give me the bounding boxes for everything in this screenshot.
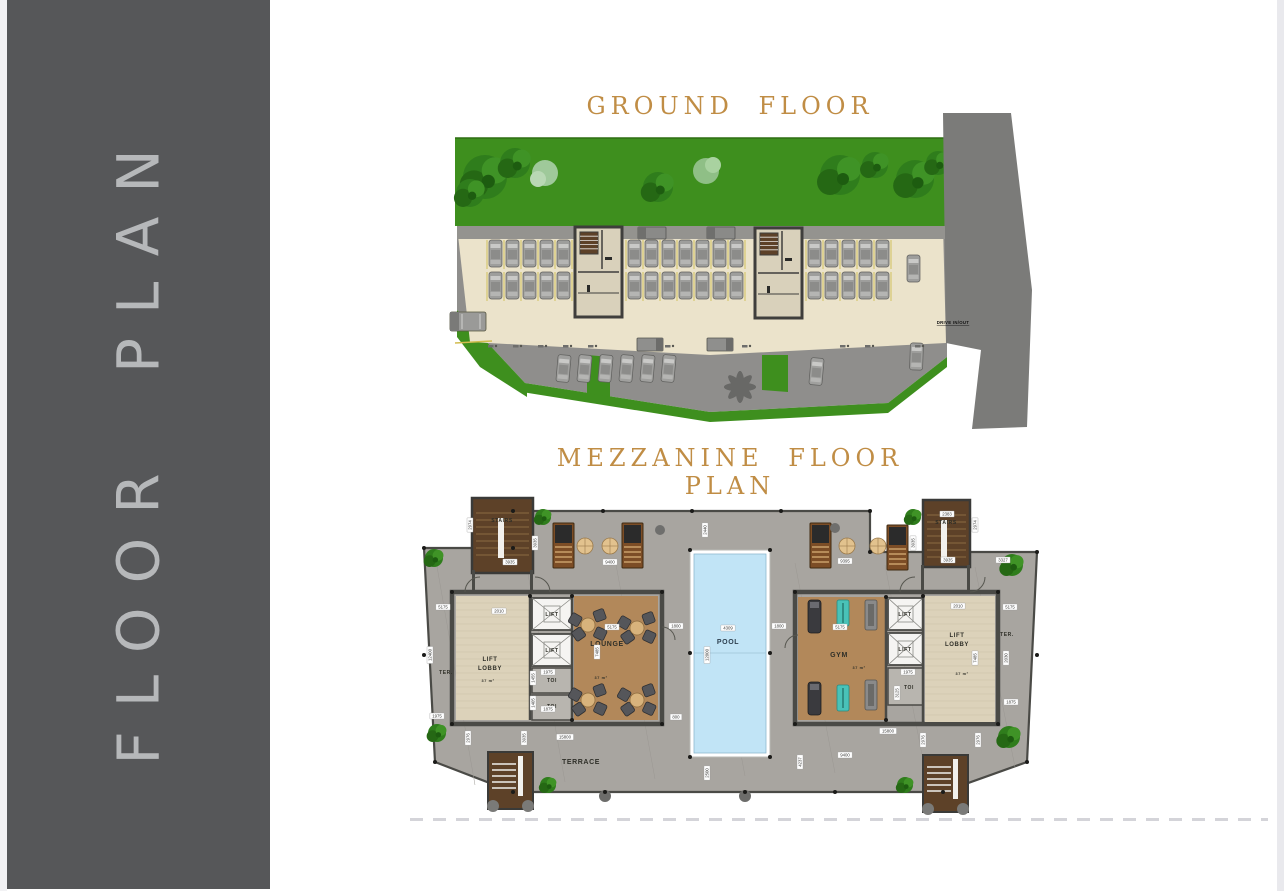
column-dot xyxy=(868,509,872,513)
room-label: TOI xyxy=(547,678,557,684)
dimension-text: 2976 xyxy=(976,735,981,745)
column-dot xyxy=(603,790,607,794)
shape xyxy=(664,250,673,259)
shape xyxy=(643,365,653,375)
shape xyxy=(559,292,569,296)
dimension-text: 2974 xyxy=(468,520,473,530)
dimension-label: 3935 xyxy=(503,559,517,565)
dimension-label: 2030 xyxy=(1003,651,1009,665)
dimension-label: 1975 xyxy=(901,669,915,675)
car-icon xyxy=(859,240,872,267)
column-dot xyxy=(768,755,772,759)
shape xyxy=(508,244,518,248)
shape xyxy=(844,250,853,259)
truck-icon xyxy=(450,312,486,331)
car-icon xyxy=(540,272,553,299)
dot xyxy=(912,177,923,188)
dot xyxy=(545,345,547,347)
column-dot xyxy=(768,548,772,552)
dimension-text: 2976 xyxy=(466,733,471,743)
column-dot xyxy=(941,790,945,794)
dimension-text: 2440 xyxy=(703,525,708,535)
shape xyxy=(868,684,874,706)
shape xyxy=(941,520,947,560)
dimension-label: 2010 xyxy=(492,608,506,614)
column-dot xyxy=(868,550,872,554)
shape xyxy=(508,282,517,291)
room-label: LIFT xyxy=(545,612,559,618)
column-dot xyxy=(422,653,426,657)
shape xyxy=(664,276,674,280)
dot xyxy=(922,345,924,347)
column-dot xyxy=(768,651,772,655)
dimension-text: 1405 xyxy=(531,698,536,708)
shape xyxy=(542,282,551,291)
shape xyxy=(698,260,708,264)
dot xyxy=(705,157,721,173)
shape xyxy=(525,244,535,248)
shape xyxy=(491,282,500,291)
shape xyxy=(767,286,770,293)
sun-lounger-icon xyxy=(622,523,643,568)
car-icon xyxy=(619,354,634,382)
shape xyxy=(681,276,691,280)
top-aisle xyxy=(457,226,945,239)
dimension-text: 2976 xyxy=(921,735,926,745)
car-icon xyxy=(679,240,692,267)
shape xyxy=(878,244,888,248)
shape xyxy=(491,250,500,259)
car-icon xyxy=(808,240,821,267)
shape xyxy=(732,244,742,248)
car-icon xyxy=(696,240,709,267)
dot xyxy=(912,516,917,521)
dimension-text: 9400 xyxy=(605,560,615,565)
shape xyxy=(715,282,724,291)
column-dot xyxy=(921,594,925,598)
wheel-stop xyxy=(513,345,519,348)
shape xyxy=(647,276,657,280)
dimension-text: 3935 xyxy=(911,538,916,548)
ground-floor-plan: DRIVE IN/OUT xyxy=(410,105,1040,450)
dimension-text: 5175 xyxy=(438,605,448,610)
dimension-text: 3125 xyxy=(895,688,900,698)
shape xyxy=(681,260,691,264)
dot xyxy=(837,173,849,185)
shape xyxy=(707,227,715,239)
dimension-text: 4309 xyxy=(723,626,733,631)
car-icon xyxy=(842,272,855,299)
shape xyxy=(542,276,552,280)
sidebar-vertical-title: FLOOR PLAN xyxy=(105,125,173,764)
car-icon xyxy=(808,272,821,299)
dimension-text: 3935 xyxy=(533,538,538,548)
dot xyxy=(904,784,909,789)
wheel-stop xyxy=(588,345,594,348)
column-dot xyxy=(660,722,664,726)
shape xyxy=(559,244,569,248)
car-icon xyxy=(907,255,920,282)
shape xyxy=(525,282,534,291)
shape xyxy=(525,250,534,259)
dimension-text: 1800 xyxy=(671,624,681,629)
dimension-text: 1800 xyxy=(774,624,784,629)
room-label: POOL xyxy=(717,639,739,646)
shape xyxy=(785,258,792,261)
shape xyxy=(508,260,518,264)
stair-foot xyxy=(487,800,499,812)
car-icon xyxy=(557,272,570,299)
dimension-label: 15800 xyxy=(880,728,897,734)
dimension-text: 7485 xyxy=(973,653,978,663)
column-dot xyxy=(688,755,692,759)
car-icon xyxy=(628,240,641,267)
dimension-label: 5175 xyxy=(833,624,847,630)
dimension-label: 1405 xyxy=(530,696,536,710)
dimension-text: 12400 xyxy=(428,648,433,661)
shape xyxy=(630,260,640,264)
shape xyxy=(878,276,888,280)
column-dot xyxy=(433,760,437,764)
shape xyxy=(878,250,887,259)
dimension-text: 9395 xyxy=(840,559,850,564)
column-dot xyxy=(884,718,888,722)
shape xyxy=(953,759,958,799)
dimension-text: 1975 xyxy=(432,714,442,719)
shape xyxy=(878,282,887,291)
shape xyxy=(559,250,568,259)
shape xyxy=(760,233,778,255)
car-icon xyxy=(696,272,709,299)
column-dot xyxy=(511,790,515,794)
dot xyxy=(570,345,572,347)
dimension-label: 7485 xyxy=(594,645,600,659)
shape xyxy=(827,244,837,248)
dot xyxy=(547,784,552,789)
shape xyxy=(698,244,708,248)
shape xyxy=(861,250,870,259)
dimension-text: 2974 xyxy=(973,520,978,530)
column-dot xyxy=(528,594,532,598)
shape xyxy=(525,260,535,264)
car-icon xyxy=(645,240,658,267)
shape xyxy=(664,292,674,296)
shape xyxy=(827,250,836,259)
room-label: TER. xyxy=(439,670,453,676)
dot xyxy=(656,186,665,195)
column-dot xyxy=(688,548,692,552)
dimension-label: 1875 xyxy=(541,706,555,712)
dimension-label: 3125 xyxy=(894,686,900,700)
column-dot xyxy=(996,590,1000,594)
dimension-label: 3935 xyxy=(941,557,955,563)
car-icon xyxy=(628,272,641,299)
shape xyxy=(698,250,707,259)
dimension-text: 15800 xyxy=(559,735,572,740)
shape xyxy=(726,338,733,351)
car-icon xyxy=(640,354,655,382)
dot xyxy=(436,732,441,737)
column-dot xyxy=(450,722,454,726)
dimension-text: 7485 xyxy=(595,647,600,657)
column-dot xyxy=(833,790,837,794)
shape xyxy=(715,276,725,280)
car-icon xyxy=(506,272,519,299)
room-label: GYM xyxy=(830,652,848,659)
car-icon xyxy=(713,240,726,267)
dimension-label: 5175 xyxy=(436,604,450,610)
room-label: 37 m² xyxy=(956,672,969,676)
dimension-label: 2500 xyxy=(704,766,710,780)
shape xyxy=(715,292,725,296)
sun-lounger-icon xyxy=(810,523,831,568)
shape xyxy=(861,282,870,291)
shape xyxy=(810,276,820,280)
shape xyxy=(498,518,504,558)
shape xyxy=(630,276,640,280)
wheel-stop xyxy=(538,345,544,348)
room-label: STAIRS xyxy=(935,520,957,526)
dot xyxy=(1010,564,1017,571)
dimension-text: 1455 xyxy=(531,673,536,683)
dimension-label: 3327 xyxy=(996,557,1010,563)
shape xyxy=(810,684,819,690)
column-dot xyxy=(690,509,694,513)
car-icon xyxy=(842,240,855,267)
dimension-text: 12000 xyxy=(705,648,710,661)
dimension-text: 9400 xyxy=(840,753,850,758)
shape xyxy=(518,756,523,796)
car-icon xyxy=(489,272,502,299)
tree-icon xyxy=(904,509,922,525)
shape xyxy=(491,244,501,248)
shape xyxy=(605,257,612,260)
dimension-label: 1975 xyxy=(541,669,555,675)
round-column xyxy=(830,523,840,533)
car-icon xyxy=(598,354,613,382)
stair-foot xyxy=(922,803,934,815)
dimension-label: 7485 xyxy=(972,651,978,665)
shape xyxy=(508,276,518,280)
dimension-label: 9400 xyxy=(603,559,617,565)
drive-inout-label: DRIVE IN/OUT xyxy=(937,320,970,325)
shape xyxy=(715,260,725,264)
shape xyxy=(542,250,551,259)
column-dot xyxy=(688,651,692,655)
shape xyxy=(681,282,690,291)
column-dot xyxy=(422,546,426,550)
sun-lounger-icon xyxy=(887,525,908,570)
dimension-text: 2500 xyxy=(705,768,710,778)
column-dot xyxy=(570,594,574,598)
shape xyxy=(647,292,657,296)
shape xyxy=(542,292,552,296)
dot xyxy=(672,345,674,347)
dimension-label: 3935 xyxy=(910,536,916,550)
dimension-text: 800 xyxy=(672,715,680,720)
dimension-label: 1455 xyxy=(530,671,536,685)
shape xyxy=(732,260,742,264)
room-label: TERRACE xyxy=(562,759,600,766)
grass-island xyxy=(762,355,788,392)
column-dot xyxy=(793,590,797,594)
shape xyxy=(878,260,888,264)
wheel-stop xyxy=(840,345,846,348)
shape xyxy=(844,260,854,264)
car-icon xyxy=(540,240,553,267)
dimension-label: 15800 xyxy=(557,734,574,740)
shape xyxy=(715,244,725,248)
column-dot xyxy=(743,790,747,794)
shape xyxy=(827,282,836,291)
shape xyxy=(664,282,673,291)
stair-foot xyxy=(957,803,969,815)
shape xyxy=(559,282,568,291)
shape xyxy=(525,292,535,296)
dot xyxy=(513,162,522,171)
shape xyxy=(909,275,919,279)
shape xyxy=(810,602,819,608)
dimension-label: 2383 xyxy=(940,511,954,517)
shape xyxy=(921,565,924,594)
column-dot xyxy=(779,509,783,513)
dot xyxy=(872,345,874,347)
wheel-stop xyxy=(915,345,921,348)
room-label: 37 m² xyxy=(482,679,495,683)
dimension-label: 3935 xyxy=(532,536,538,550)
shape xyxy=(664,244,674,248)
dimension-text: 2010 xyxy=(494,609,504,614)
room-label: LIFT xyxy=(949,633,964,639)
dot xyxy=(873,164,881,172)
shape xyxy=(656,338,663,351)
dimension-label: 4309 xyxy=(721,625,735,631)
shape xyxy=(909,259,919,263)
dimension-text: 5175 xyxy=(835,625,845,630)
dimension-label: 3935 xyxy=(521,731,527,745)
dot xyxy=(542,516,547,521)
sidebar: FLOOR PLAN xyxy=(7,0,270,889)
dimension-label: 2976 xyxy=(920,733,926,747)
wheel-stop xyxy=(742,345,748,348)
shape xyxy=(878,292,888,296)
dimension-label: 2010 xyxy=(951,603,965,609)
car-icon xyxy=(523,272,536,299)
car-icon xyxy=(577,354,592,382)
car-icon xyxy=(523,240,536,267)
dimension-label: 2974 xyxy=(972,518,978,532)
road-area xyxy=(943,113,1032,429)
dimension-label: 9395 xyxy=(838,558,852,564)
dimension-label: 2440 xyxy=(702,523,708,537)
car-icon xyxy=(506,240,519,267)
shape xyxy=(630,250,639,259)
dimension-text: 1875 xyxy=(1006,700,1016,705)
shape xyxy=(491,292,501,296)
shape xyxy=(601,365,611,375)
shape xyxy=(542,244,552,248)
dot xyxy=(433,557,438,562)
room-label: STAIRS xyxy=(491,518,513,524)
round-column xyxy=(655,525,665,535)
shape xyxy=(664,365,674,375)
shape xyxy=(647,282,656,291)
car-icon xyxy=(661,354,676,382)
shape xyxy=(508,292,518,296)
dimension-label: 1800 xyxy=(772,623,786,629)
dimension-label: 2976 xyxy=(975,733,981,747)
car-icon xyxy=(645,272,658,299)
wheel-stop xyxy=(563,345,569,348)
shape xyxy=(868,604,874,626)
shape xyxy=(812,525,829,543)
room-label: 37 m² xyxy=(853,666,866,670)
shape xyxy=(698,276,708,280)
dimension-label: 1975 xyxy=(430,713,444,719)
shape xyxy=(664,260,674,264)
shape xyxy=(715,250,724,259)
dot xyxy=(749,345,751,347)
room-label: LIFT xyxy=(545,648,559,654)
palm-shadow xyxy=(724,371,756,403)
column-dot xyxy=(996,722,1000,726)
stair-foot xyxy=(522,800,534,812)
shape xyxy=(491,276,501,280)
shape xyxy=(580,365,590,375)
scrollbar[interactable] xyxy=(1277,0,1284,891)
car-icon xyxy=(809,357,824,385)
shape xyxy=(559,365,569,375)
dimension-label: 12400 xyxy=(427,647,433,664)
shape xyxy=(732,276,742,280)
shape xyxy=(967,565,970,594)
column-dot xyxy=(1035,550,1039,554)
dimension-label: 5175 xyxy=(605,624,619,630)
shape xyxy=(844,244,854,248)
dimension-text: 1875 xyxy=(543,707,553,712)
dimension-label: 800 xyxy=(670,714,682,720)
shape xyxy=(647,250,656,259)
page-left-margin xyxy=(0,0,7,891)
dashed-divider xyxy=(410,818,1268,821)
dimension-text: 3935 xyxy=(522,733,527,743)
dot xyxy=(1007,736,1014,743)
car-icon xyxy=(825,240,838,267)
car-icon xyxy=(557,240,570,267)
car-icon xyxy=(876,272,889,299)
shape xyxy=(732,282,741,291)
room-label: LIFT xyxy=(482,657,497,663)
car-icon xyxy=(556,354,571,382)
shape xyxy=(647,244,657,248)
shape xyxy=(844,276,854,280)
shape xyxy=(559,260,569,264)
dimension-text: 2383 xyxy=(942,512,952,517)
shape xyxy=(732,292,742,296)
car-icon xyxy=(730,240,743,267)
shape xyxy=(525,276,535,280)
shape xyxy=(827,292,837,296)
shape xyxy=(630,244,640,248)
shape xyxy=(698,292,708,296)
car-icon xyxy=(859,272,872,299)
dimension-text: 1975 xyxy=(543,670,553,675)
shape xyxy=(624,525,641,543)
dimension-text: 5175 xyxy=(1005,605,1015,610)
dimension-text: 15800 xyxy=(882,729,895,734)
room-label: LIFT xyxy=(898,647,912,653)
column-dot xyxy=(1035,653,1039,657)
